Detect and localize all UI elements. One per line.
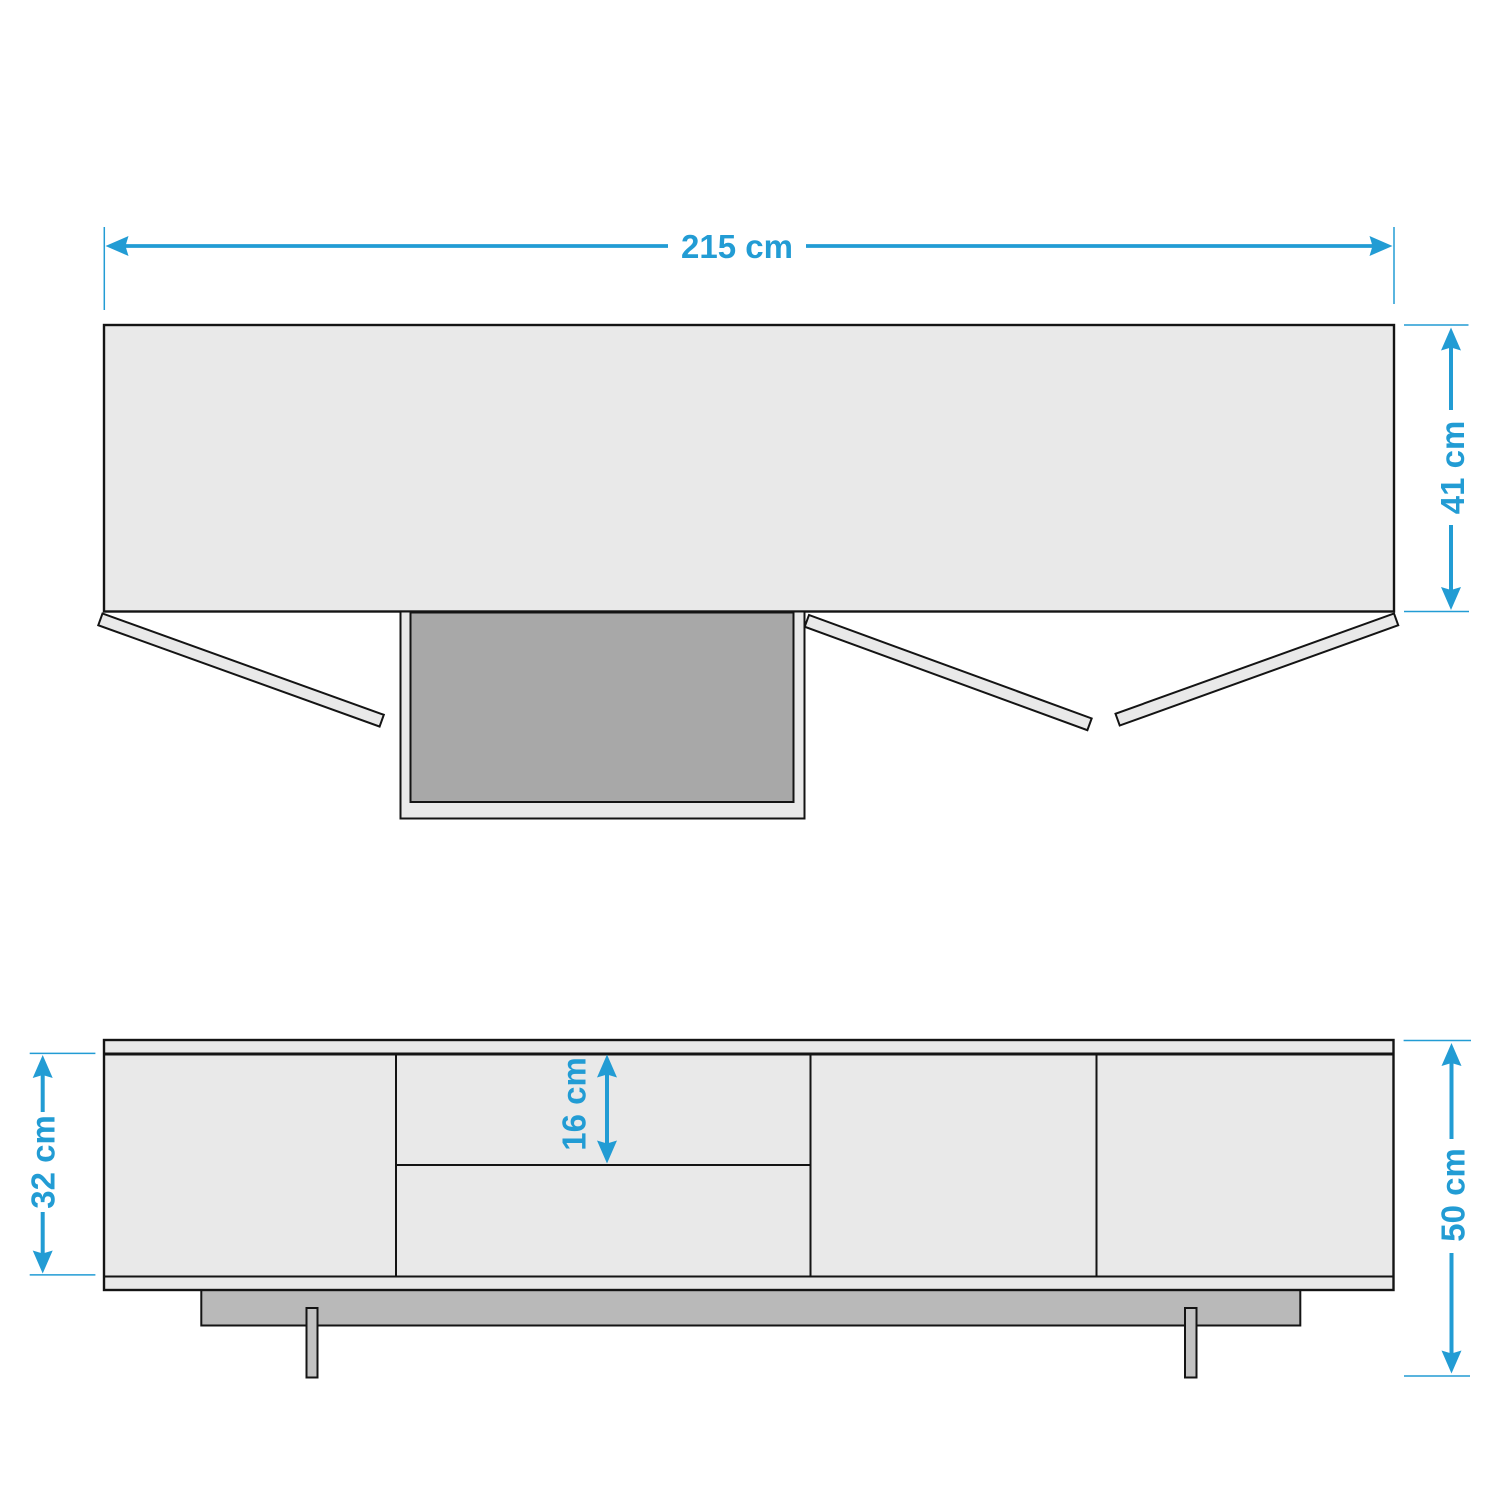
svg-text:16 cm: 16 cm [555, 1057, 592, 1151]
svg-text:41 cm: 41 cm [1434, 421, 1471, 515]
svg-text:215 cm: 215 cm [681, 228, 793, 265]
svg-text:50 cm: 50 cm [1434, 1148, 1471, 1242]
svg-text:32 cm: 32 cm [25, 1115, 62, 1209]
